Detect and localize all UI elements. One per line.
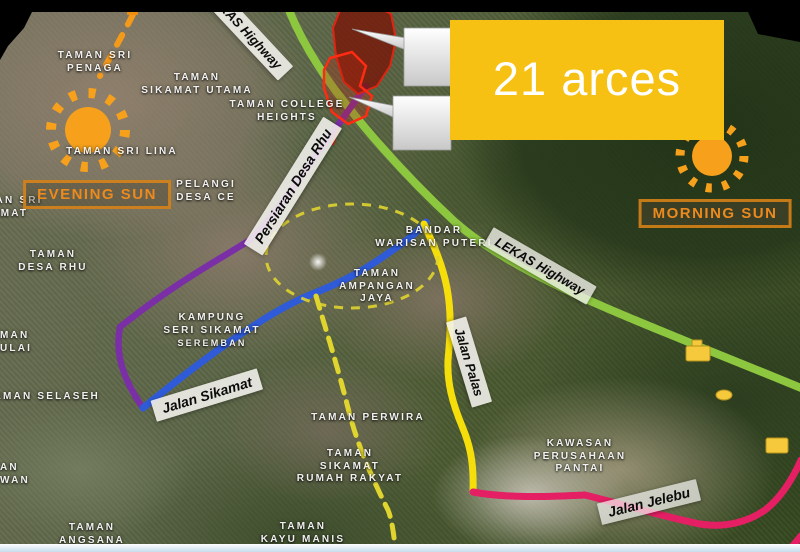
bottom-edge-strip: [0, 544, 800, 552]
place-label-pelangi-desa: PELANGIDESA CE: [176, 179, 236, 204]
place-label-taman-desa-rhu: TAMANDESA RHU: [18, 249, 87, 274]
highway-badge-2: [716, 390, 732, 400]
place-label-taman-ampangan-jaya: TAMANAMPANGANJAYA: [339, 268, 415, 306]
place-label-edge-fragment-2: ANWAN: [0, 462, 30, 487]
place-label-taman-selaseh: TAMAN SELASEH: [0, 391, 100, 404]
place-label-taman-sri-lina: TAMAN SRI LINA: [66, 146, 178, 159]
map-slide: TAMAN SRIPENAGA TAMANSIKAMAT UTAMA TAMAN…: [0, 0, 800, 552]
place-label-taman-kayu-manis: TAMANKAYU MANIS: [261, 521, 345, 546]
place-label-edge-fragment-1: MANULAI: [0, 330, 32, 355]
place-label-bandar-warisan-puteri: BANDARWARISAN PUTERI: [375, 225, 492, 250]
place-label-rumah-rakyat: TAMANSIKAMATRUMAH RAKYAT: [297, 448, 403, 486]
place-label-taman-perwira: TAMAN PERWIRA: [311, 412, 425, 425]
place-label-taman-sikamat-utama: TAMANSIKAMAT UTAMA: [141, 72, 253, 97]
top-black-bar: [0, 0, 800, 12]
evening-sun-label: EVENING SUN: [23, 180, 171, 209]
place-label-kampung-seri-sikamat: KAMPUNGSERI SIKAMATSEREMBAN: [163, 312, 260, 350]
morning-sun-label: MORNING SUN: [639, 199, 792, 228]
place-label-taman-sri-penaga: TAMAN SRIPENAGA: [58, 50, 133, 75]
highway-badge-3: [766, 438, 788, 453]
area-annotation-box: 21 arces: [450, 20, 724, 140]
place-label-kawasan-perusahaan: KAWASANPERUSAHAANPANTAI: [534, 438, 627, 476]
